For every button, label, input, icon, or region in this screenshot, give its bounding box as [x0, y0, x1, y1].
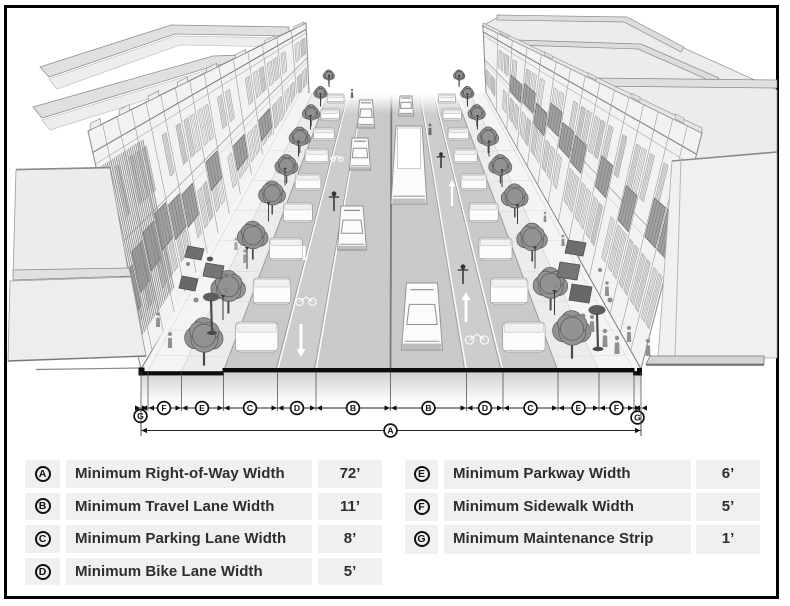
svg-text:C: C — [527, 403, 533, 413]
svg-text:B: B — [350, 403, 356, 413]
svg-text:D: D — [294, 403, 300, 413]
svg-text:F: F — [161, 403, 166, 413]
svg-text:E: E — [576, 403, 582, 413]
svg-text:E: E — [199, 403, 205, 413]
svg-text:B: B — [425, 403, 431, 413]
svg-text:C: C — [247, 403, 253, 413]
svg-text:A: A — [387, 426, 393, 436]
svg-text:G: G — [634, 413, 641, 423]
svg-text:D: D — [482, 403, 488, 413]
svg-text:F: F — [614, 403, 619, 413]
